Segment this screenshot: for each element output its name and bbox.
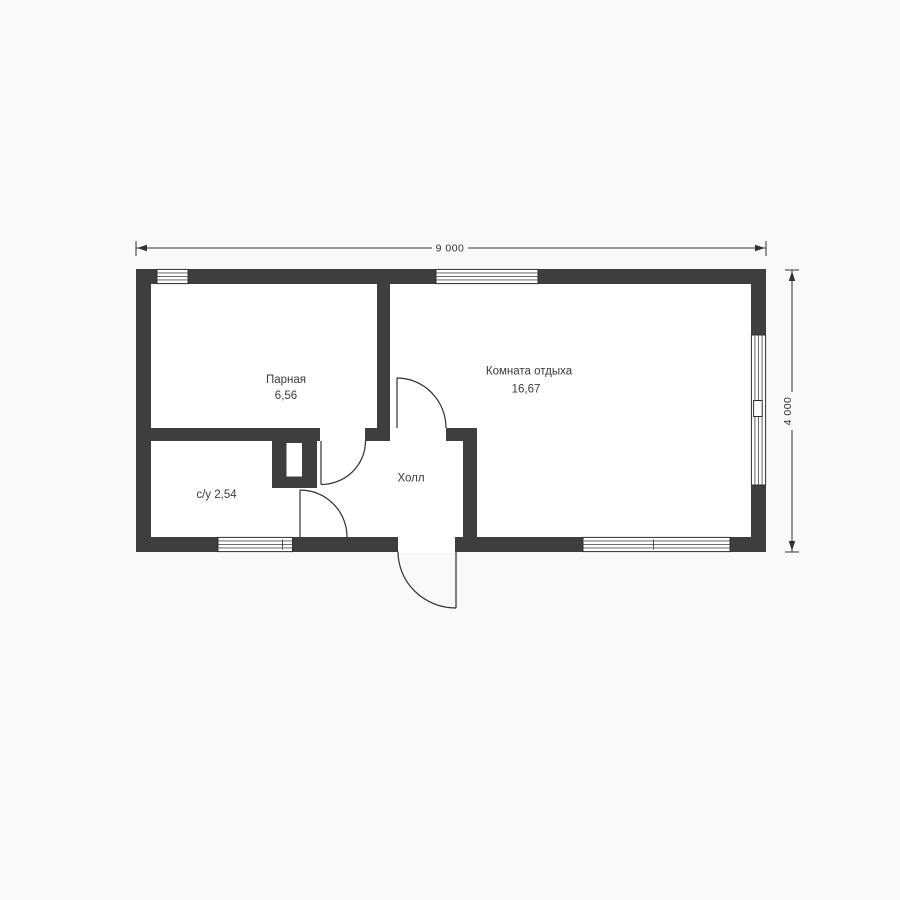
window-livingroom-top: [436, 269, 538, 283]
door-entrance: [398, 552, 456, 609]
partition-wall-parnaya: [377, 284, 390, 428]
window-sash-mark: [754, 401, 763, 417]
left-wall: [136, 269, 151, 552]
room-area-parnaya: 6,56: [275, 390, 297, 402]
door-swing-arc: [398, 552, 456, 609]
hall-wall-vertical: [463, 441, 477, 537]
dim-arrow-right-icon: [755, 245, 765, 251]
dim-arrow-left-icon: [137, 245, 147, 251]
dim-arrow-up-icon: [789, 271, 795, 281]
window-su-bottom: [218, 537, 293, 551]
room-label-hall: Холл: [397, 473, 424, 485]
window-livingroom-right: [751, 335, 765, 485]
dimension-width: 9 000: [136, 241, 766, 256]
room-area-livingroom: 16,67: [512, 384, 541, 396]
dimension-height-label: 4 000: [782, 397, 794, 426]
window-parnaya-top: [157, 269, 188, 283]
floor-plan-drawing: 9 000 4 000 Парная 6,56 Комната отдыха 1…: [0, 0, 900, 900]
chimney-flue-opening: [287, 443, 303, 477]
partition-wall-su-top: [151, 428, 320, 441]
floor-plan: 9 000 4 000 Парная 6,56 Комната отдыха 1…: [0, 0, 900, 900]
room-label-parnaya: Парная: [266, 374, 306, 386]
partition-wall-parnaya-foot: [365, 428, 390, 441]
room-label-livingroom: Комната отдыха: [486, 366, 573, 378]
dim-arrow-down-icon: [789, 541, 795, 551]
dimension-height: 4 000: [782, 270, 799, 552]
window-livingroom-bottom: [583, 537, 730, 551]
dimension-width-label: 9 000: [436, 243, 465, 255]
hall-wall-horizontal: [446, 428, 477, 441]
building-floor: [136, 269, 766, 552]
entrance-door-opening: [398, 537, 455, 554]
room-label-su: с/у 2,54: [196, 489, 237, 501]
